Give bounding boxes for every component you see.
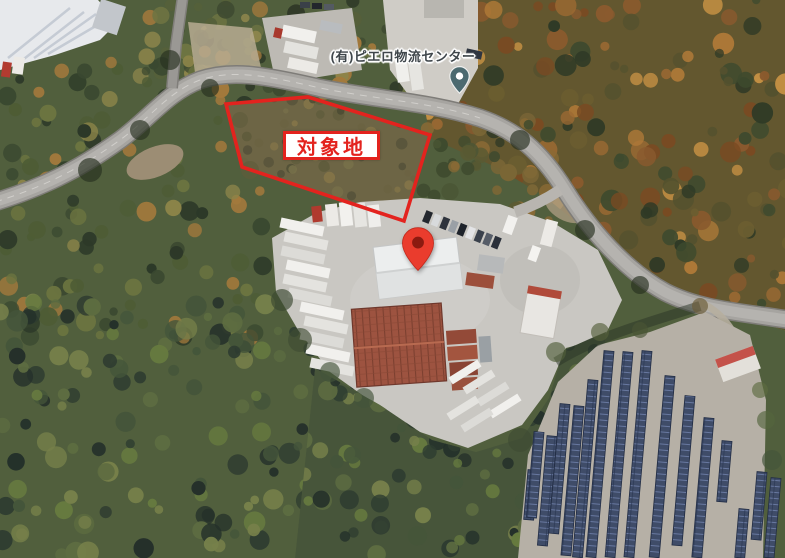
red-map-pin-icon[interactable] <box>401 227 435 276</box>
warehouse-red-roof <box>351 303 446 387</box>
poi-pin-icon[interactable] <box>449 66 470 99</box>
satellite-map[interactable]: 対象地 (有)ピエロ物流センター <box>0 0 785 558</box>
satellite-imagery <box>0 0 785 558</box>
poi-label[interactable]: (有)ピエロ物流センター <box>318 46 488 65</box>
site-label: 対象地 <box>283 131 380 160</box>
